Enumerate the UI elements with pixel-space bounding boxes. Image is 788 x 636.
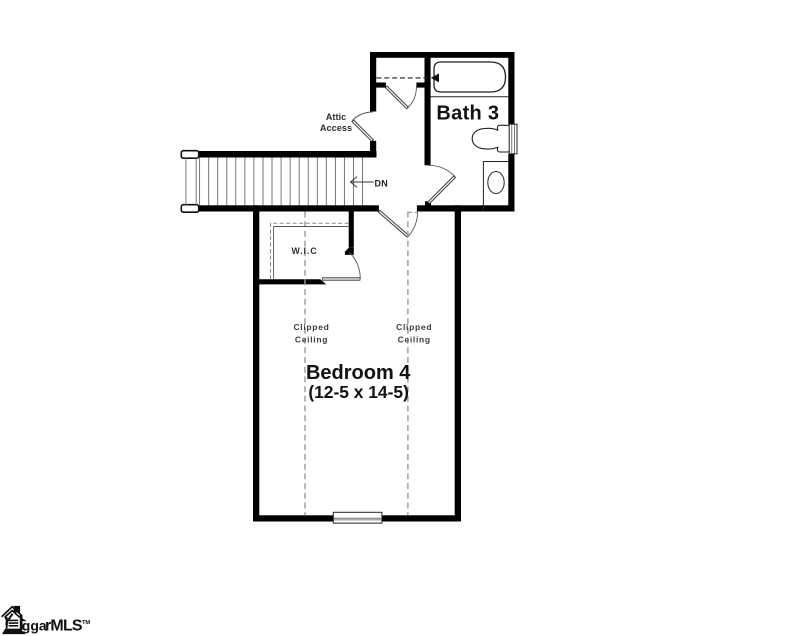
svg-text:Clipped: Clipped <box>293 322 329 332</box>
svg-text:TM: TM <box>82 620 90 626</box>
svg-text:Bath 3: Bath 3 <box>436 103 499 125</box>
svg-text:rMLS: rMLS <box>45 618 83 635</box>
svg-text:Ceiling: Ceiling <box>398 334 431 344</box>
svg-text:Access: Access <box>320 123 352 133</box>
svg-text:W.I.C: W.I.C <box>291 246 317 256</box>
svg-text:gga: gga <box>22 618 47 634</box>
svg-text:DN: DN <box>375 178 389 188</box>
svg-text:Clipped: Clipped <box>396 322 432 332</box>
svg-text:Bedroom 4: Bedroom 4 <box>306 362 411 384</box>
svg-text:Attic: Attic <box>326 112 346 122</box>
svg-text:Ceiling: Ceiling <box>295 334 328 344</box>
svg-text:(12-5 x 14-5): (12-5 x 14-5) <box>308 382 409 402</box>
